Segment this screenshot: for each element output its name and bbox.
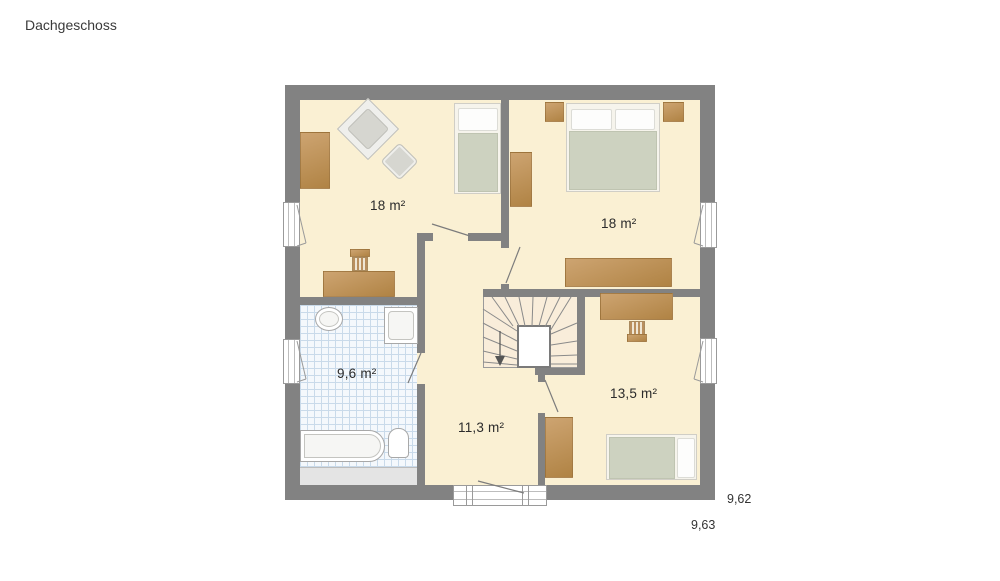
- room-area-label: 18 m²: [601, 216, 637, 231]
- dimension-label: 9,63: [691, 518, 715, 532]
- wall-bathroom-top: [300, 297, 418, 305]
- wall-bottom: [285, 485, 453, 500]
- balcony-window: [453, 485, 547, 506]
- washbasin: [315, 307, 343, 331]
- stair-void: [517, 325, 551, 368]
- wall-between-bedrooms: [501, 100, 509, 248]
- room-area-label: 9,6 m²: [337, 366, 376, 381]
- pillow: [458, 108, 498, 131]
- nightstand: [663, 102, 684, 122]
- wardrobe: [300, 132, 330, 189]
- room-area-label: 18 m²: [370, 198, 406, 213]
- window: [700, 202, 717, 248]
- page-title: Dachgeschoss: [25, 17, 117, 33]
- bathtub-basin: [304, 434, 381, 458]
- wall-bathroom-right: [417, 233, 425, 353]
- dimension-label: 9,62: [727, 492, 751, 506]
- floor-plan-page: Dachgeschoss: [0, 0, 1000, 581]
- wardrobe: [545, 417, 573, 478]
- bathtub: [300, 430, 385, 462]
- sideboard: [565, 258, 672, 287]
- desk-chair-backrest: [627, 334, 647, 342]
- wardrobe: [510, 152, 532, 207]
- desk-chair: [352, 257, 368, 271]
- window: [283, 339, 300, 384]
- armchair-cushion: [347, 108, 389, 150]
- wall-stairs-right: [577, 289, 585, 375]
- mattress: [609, 437, 675, 479]
- wall-left: [285, 247, 300, 339]
- washbasin-bowl: [319, 311, 339, 327]
- pillow: [615, 109, 655, 130]
- desk: [323, 271, 395, 297]
- wall-hallway-right: [538, 413, 545, 485]
- wall-bottom: [547, 485, 715, 500]
- window-mullion: [522, 486, 529, 505]
- wall-left: [285, 384, 300, 485]
- desk-chair: [629, 321, 645, 335]
- wall-hallway-top: [468, 233, 509, 241]
- desk: [600, 293, 673, 320]
- single-bed: [454, 103, 501, 194]
- room-area-label: 11,3 m²: [458, 420, 504, 435]
- desk-chair-backrest: [350, 249, 370, 257]
- wall-right: [700, 248, 715, 338]
- window: [700, 338, 717, 384]
- wall-top: [285, 85, 715, 100]
- wall-hallway-right: [538, 368, 545, 382]
- toilet: [388, 428, 409, 458]
- mattress: [458, 133, 498, 192]
- mattress: [569, 131, 657, 190]
- wall-right: [700, 384, 715, 500]
- double-bed: [566, 103, 660, 192]
- pillow: [677, 438, 695, 478]
- knee-wall-strip: [300, 467, 417, 485]
- wall-left: [285, 100, 300, 202]
- window: [283, 202, 300, 247]
- window-mullion: [466, 486, 473, 505]
- single-bed: [606, 434, 697, 480]
- wall-right: [700, 100, 715, 202]
- room-area-label: 13,5 m²: [610, 386, 657, 401]
- shower-tray: [388, 311, 414, 340]
- nightstand: [545, 102, 564, 122]
- pillow: [571, 109, 612, 130]
- wall-bathroom-right: [417, 384, 425, 485]
- shower: [384, 307, 418, 344]
